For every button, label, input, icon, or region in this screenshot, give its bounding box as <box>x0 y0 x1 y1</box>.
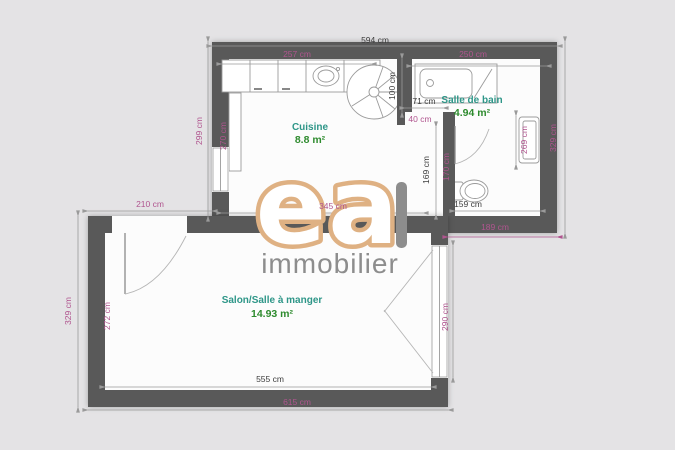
floor-plan: ea immobilier 594 cm 299 cm 329 cm 270 c… <box>0 0 675 450</box>
room-name-living: Salon/Salle à manger <box>222 295 323 306</box>
dim-kitchen-width: 345 cm <box>319 201 347 211</box>
dim-corridor-wall: 170 cm <box>441 153 451 181</box>
dim-upper-left-height: 299 cm <box>194 117 204 145</box>
room-name-kitchen: Cuisine <box>292 122 329 133</box>
dim-toilet-wall-width: 159 cm <box>454 199 482 209</box>
wall-return <box>397 112 405 125</box>
room-area-living: 14.93 m² <box>251 308 294 320</box>
dim-bath-door-width: 71 cm <box>412 96 435 106</box>
dim-bottom-width: 615 cm <box>283 397 311 407</box>
dim-bath-overhang: 189 cm <box>481 222 509 232</box>
dim-divider-length: 100 cm <box>387 72 397 100</box>
logo-subtitle: immobilier <box>261 248 399 279</box>
kitchen-window <box>212 147 229 192</box>
dim-salon-inner-width: 555 cm <box>256 374 284 384</box>
kitchen-sink <box>313 66 339 86</box>
floor-plan-page: ea immobilier 594 cm 299 cm 329 cm 270 c… <box>0 0 675 450</box>
dim-upper-right-height: 329 cm <box>548 124 558 152</box>
dim-bath-right-inner: 269 cm <box>519 126 529 154</box>
dim-kitchen-left-inner: 270 cm <box>218 122 228 150</box>
logo: ea immobilier <box>256 146 407 279</box>
dim-lower-left-height: 329 cm <box>63 297 73 325</box>
dim-offset-left: 210 cm <box>136 199 164 209</box>
dim-counter-width: 257 cm <box>283 49 311 59</box>
kitchen-bath-divider-wall <box>397 59 412 112</box>
dim-corridor-height: 169 cm <box>421 156 431 184</box>
dim-salon-left-inner: 272 cm <box>102 302 112 330</box>
room-area-bathroom: 4.94 m² <box>454 107 491 119</box>
room-name-bathroom: Salle de bain <box>441 95 502 106</box>
tall-cabinet <box>229 93 241 171</box>
dim-wall-return: 40 cm <box>408 114 431 124</box>
room-area-kitchen: 8.8 m² <box>295 134 326 146</box>
dim-bath-top-width: 250 cm <box>459 49 487 59</box>
dim-window-height: 290 cm <box>440 303 450 331</box>
logo-bar <box>396 182 407 248</box>
dim-top-width: 594 cm <box>361 35 389 45</box>
